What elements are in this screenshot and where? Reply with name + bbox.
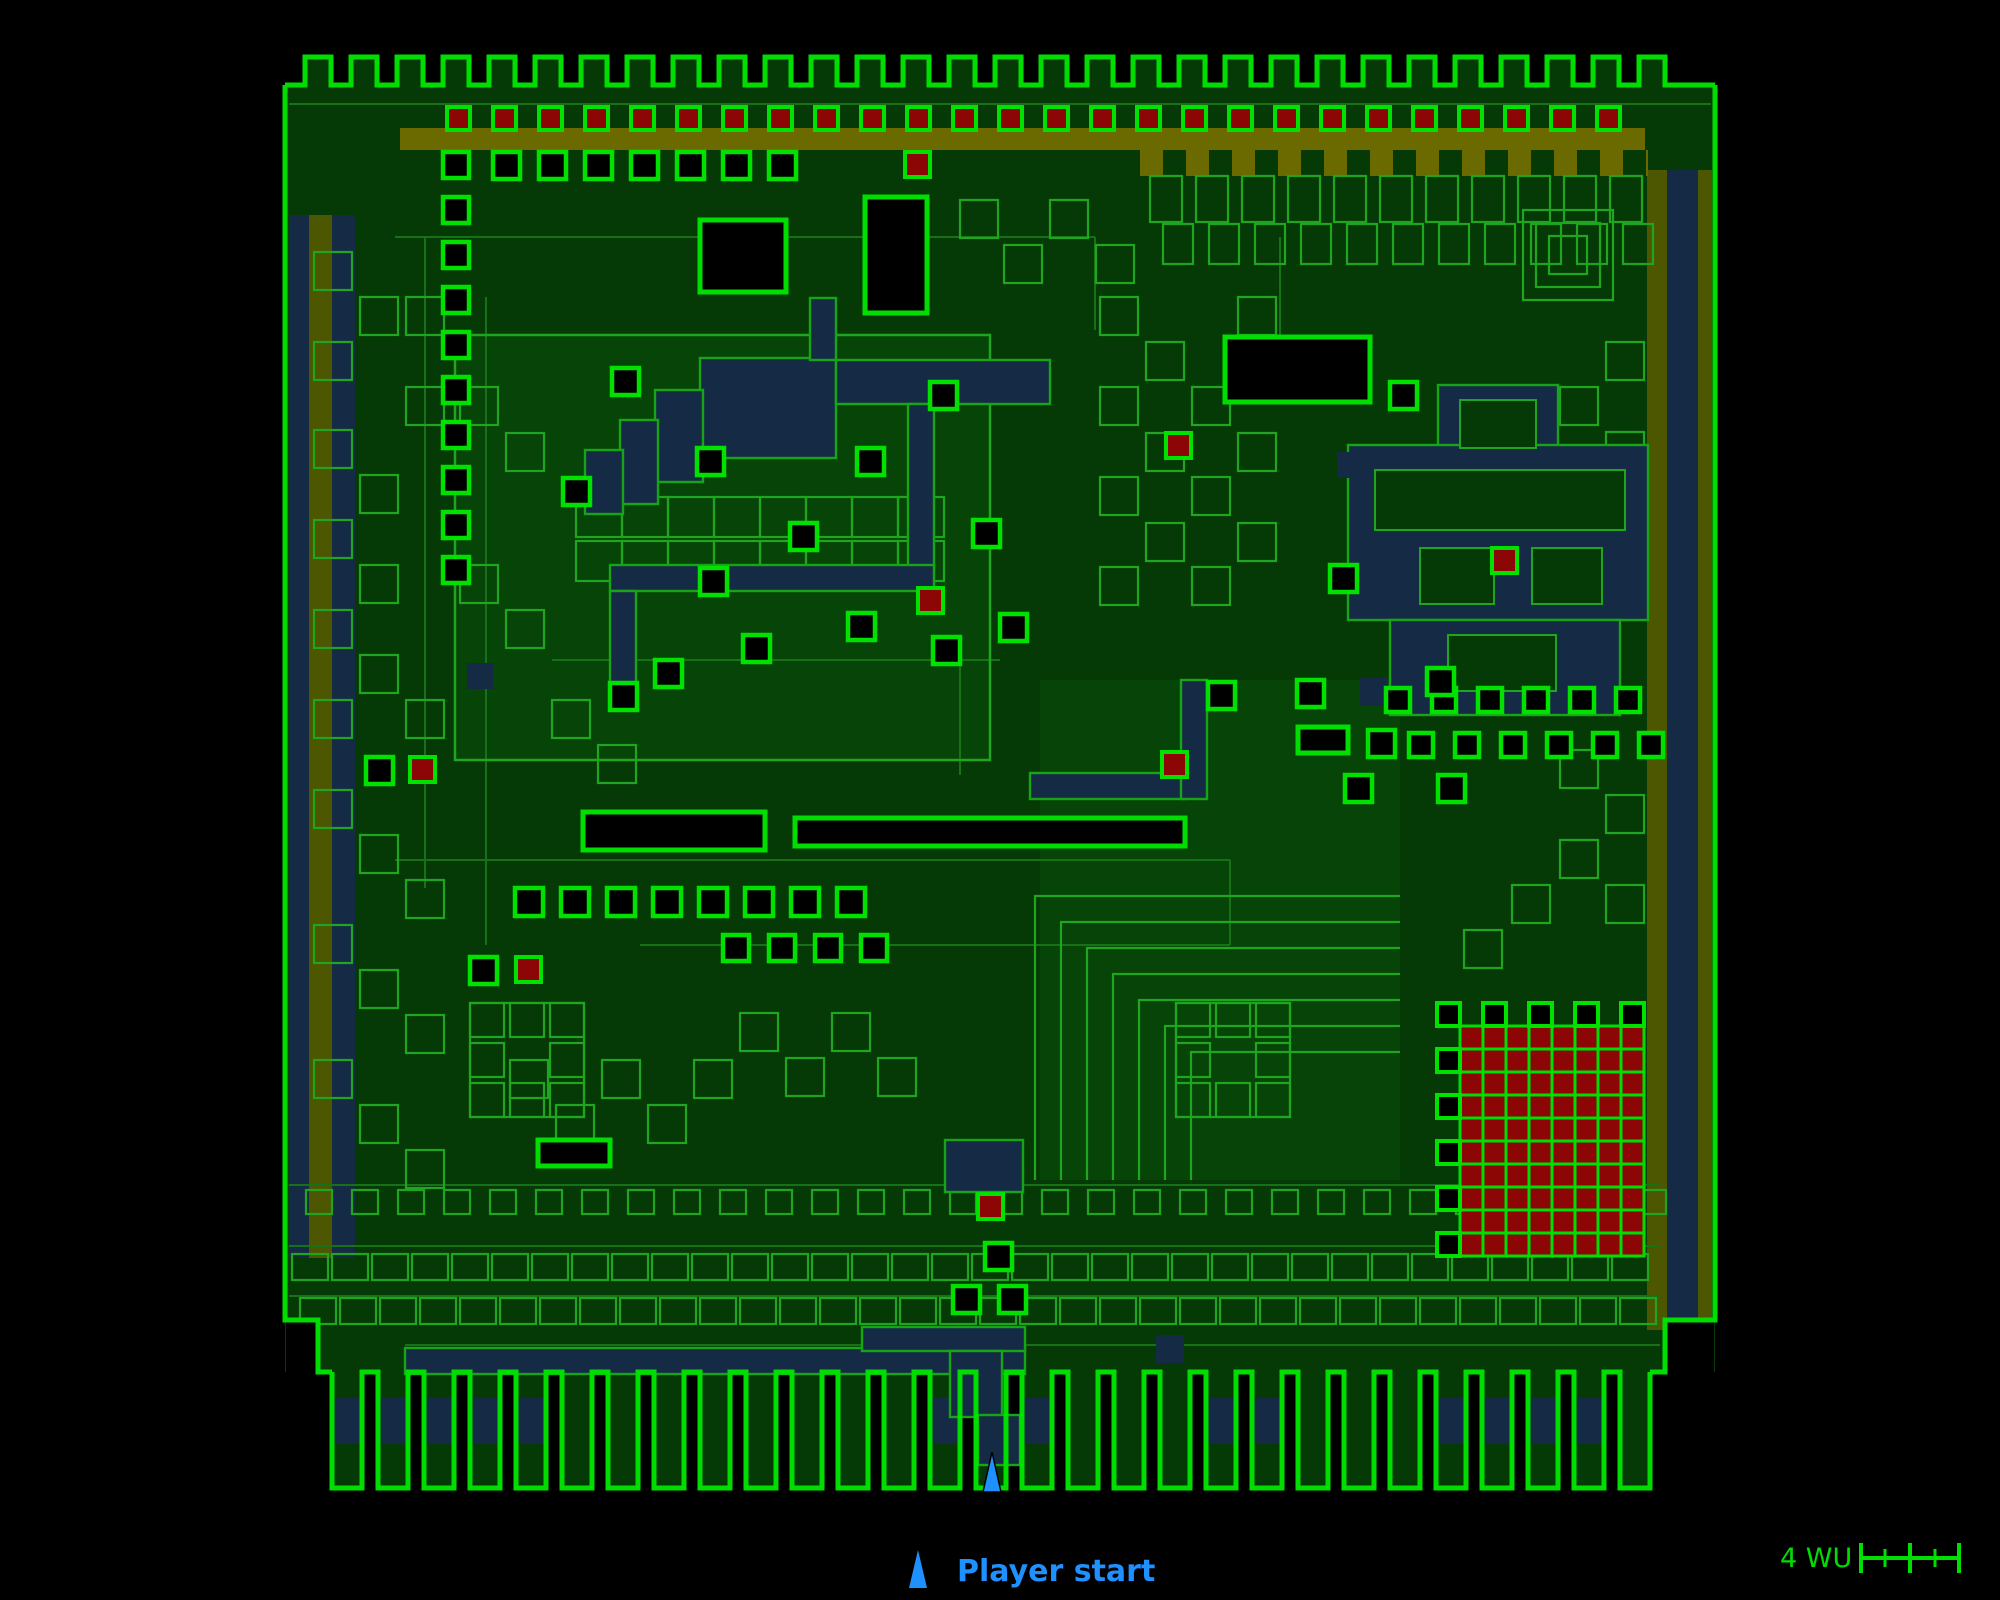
scale-ruler-icon [1858,1540,1962,1576]
player-start-label: Player start [957,1557,1155,1590]
player-start-icon [905,1546,931,1590]
level-map [0,0,2000,1600]
scale-label: 4 WU [1780,1545,1852,1572]
player-start-legend: Player start [905,1546,1155,1590]
scale-indicator: 4 WU [1780,1540,1962,1576]
automap-screen: Player start 4 WU [0,0,2000,1600]
